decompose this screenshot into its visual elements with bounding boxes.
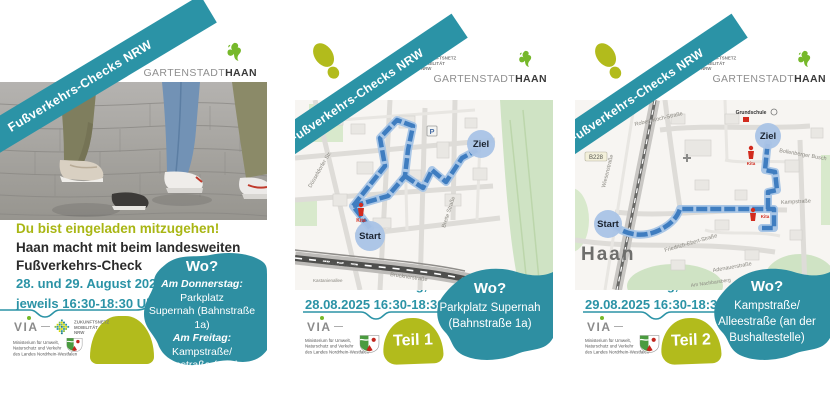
via-dot-icon <box>600 316 604 320</box>
teil-label: Teil 1 <box>393 331 433 350</box>
haan-label: HAAN <box>794 73 826 85</box>
via-dash <box>614 326 623 327</box>
wo-details: Kampstraße/ Alleestraße (an der Bushalte… <box>710 298 824 346</box>
wo-line-3: Bushaltestelle) <box>710 330 824 346</box>
invite-headline: Du bist eingeladen mitzugehen! <box>16 221 219 236</box>
gartenstadt-haan-text: GARTENSTADTHAAN <box>143 63 257 81</box>
b228-badge: B228 <box>585 152 607 161</box>
wo-details: Parkplatz Supernah (Bahnstraße 1a) <box>433 300 547 332</box>
route-map-teil2: Haan Robert-Koch-Straße Friedrich-Ebert-… <box>575 100 830 290</box>
wo-line-5: Bushaltestelle) <box>142 373 262 387</box>
via-dot-icon <box>27 316 31 320</box>
griffin-icon <box>796 50 812 68</box>
griffin-icon <box>225 42 243 62</box>
wo-line-1: Am Donnerstag: Parkplatz <box>142 278 262 305</box>
route-map-teil1: P Kita Breite Straße Brucknerstraße Haan… <box>295 100 553 290</box>
svg-text:Ziel: Ziel <box>473 139 489 150</box>
wo-info: Wo? Am Donnerstag: Parkplatz Supernah (B… <box>142 258 262 386</box>
wo-info: Wo? Parkplatz Supernah (Bahnstraße 1a) <box>433 280 547 332</box>
teil-label: Teil 2 <box>671 331 711 350</box>
svg-text:Start: Start <box>597 219 619 230</box>
griffin-icon <box>517 50 533 68</box>
via-dash <box>41 326 50 327</box>
parking-icon: P <box>427 126 437 136</box>
svg-text:Grundschule: Grundschule <box>736 110 767 116</box>
svg-text:Kita: Kita <box>761 214 770 219</box>
wo-line-2: Alleestraße (an der <box>710 314 824 330</box>
gartenstadt-haan-logo: GARTENSTADTHAAN <box>712 50 826 87</box>
wo-title: Wo? <box>433 280 547 297</box>
svg-text:P: P <box>429 127 434 136</box>
via-label: VIA <box>307 320 332 334</box>
zukunftsnetz-text: ZUKUNFTSNETZ MOBILITÄT NRW <box>74 319 109 335</box>
flyer-1: Fußverkehrs-Checks NRW GARTENSTADTHAAN <box>0 0 267 419</box>
via-logo: VIA <box>14 318 50 334</box>
gartenstadt-label: GARTENSTADT <box>143 67 225 79</box>
gartenstadt-haan-text: GARTENSTADTHAAN <box>433 69 547 87</box>
flyer-2: Fußverkehrs-Checks NRW ZUKUNFTSNETZ MOBI… <box>295 0 553 419</box>
znm-line-1: ZUKUNFTSNETZ <box>74 319 109 324</box>
flyer-collage: Fußverkehrs-Checks NRW GARTENSTADTHAAN <box>0 0 830 419</box>
start-marker: Start <box>355 221 385 251</box>
nrw-coat-of-arms <box>639 334 660 354</box>
gartenstadt-label: GARTENSTADT <box>712 73 794 85</box>
haan-label: HAAN <box>515 73 547 85</box>
wo-line-3: Am Freitag: Kampstraße/ <box>142 332 262 359</box>
via-logo: VIA <box>587 318 623 334</box>
gartenstadt-label: GARTENSTADT <box>433 73 515 85</box>
via-dot-icon <box>320 316 324 320</box>
wo-line-4: Alleestraße (an der <box>142 359 262 373</box>
svg-text:Kita: Kita <box>747 161 756 166</box>
wo-title: Wo? <box>710 278 824 295</box>
svg-text:B228: B228 <box>589 155 604 161</box>
via-label: VIA <box>587 320 612 334</box>
wo-info: Wo? Kampstraße/ Alleestraße (an der Bush… <box>710 278 824 346</box>
ziel-marker: Ziel <box>755 123 781 149</box>
gartenstadt-haan-logo: GARTENSTADTHAAN <box>433 50 547 87</box>
pixel-diamond-icon <box>54 319 70 335</box>
svg-text:Start: Start <box>359 231 381 242</box>
gartenstadt-haan-text: GARTENSTADTHAAN <box>712 69 826 87</box>
wo-line-1: Kampstraße/ <box>710 298 824 314</box>
haan-label: HAAN <box>225 67 257 79</box>
start-marker: Start <box>594 210 622 238</box>
wo-line-2: (Bahnstraße 1a) <box>433 316 547 332</box>
via-dash <box>334 326 343 327</box>
wo-details: Am Donnerstag: Parkplatz Supernah (Bahns… <box>142 278 262 386</box>
znm-line-3: NRW <box>74 330 109 335</box>
nrw-coat-of-arms <box>359 334 380 354</box>
via-label: VIA <box>14 320 39 334</box>
street-label: Kastanienallee <box>313 278 343 283</box>
wo-title: Wo? <box>142 258 262 275</box>
svg-text:Ziel: Ziel <box>760 131 776 142</box>
wo-line-1: Parkplatz Supernah <box>433 300 547 316</box>
city-label: Haan <box>581 244 635 265</box>
via-logo: VIA <box>307 318 343 334</box>
ziel-marker: Ziel <box>467 130 495 158</box>
flyer-3: Fußverkehrs-Checks NRW ZUKUNFTSNETZ MOBI… <box>575 0 830 419</box>
wo-line-2: Supernah (Bahnstraße 1a) <box>142 305 262 332</box>
zukunftsnetz-logo-small: ZUKUNFTSNETZ MOBILITÄT NRW <box>54 313 138 342</box>
